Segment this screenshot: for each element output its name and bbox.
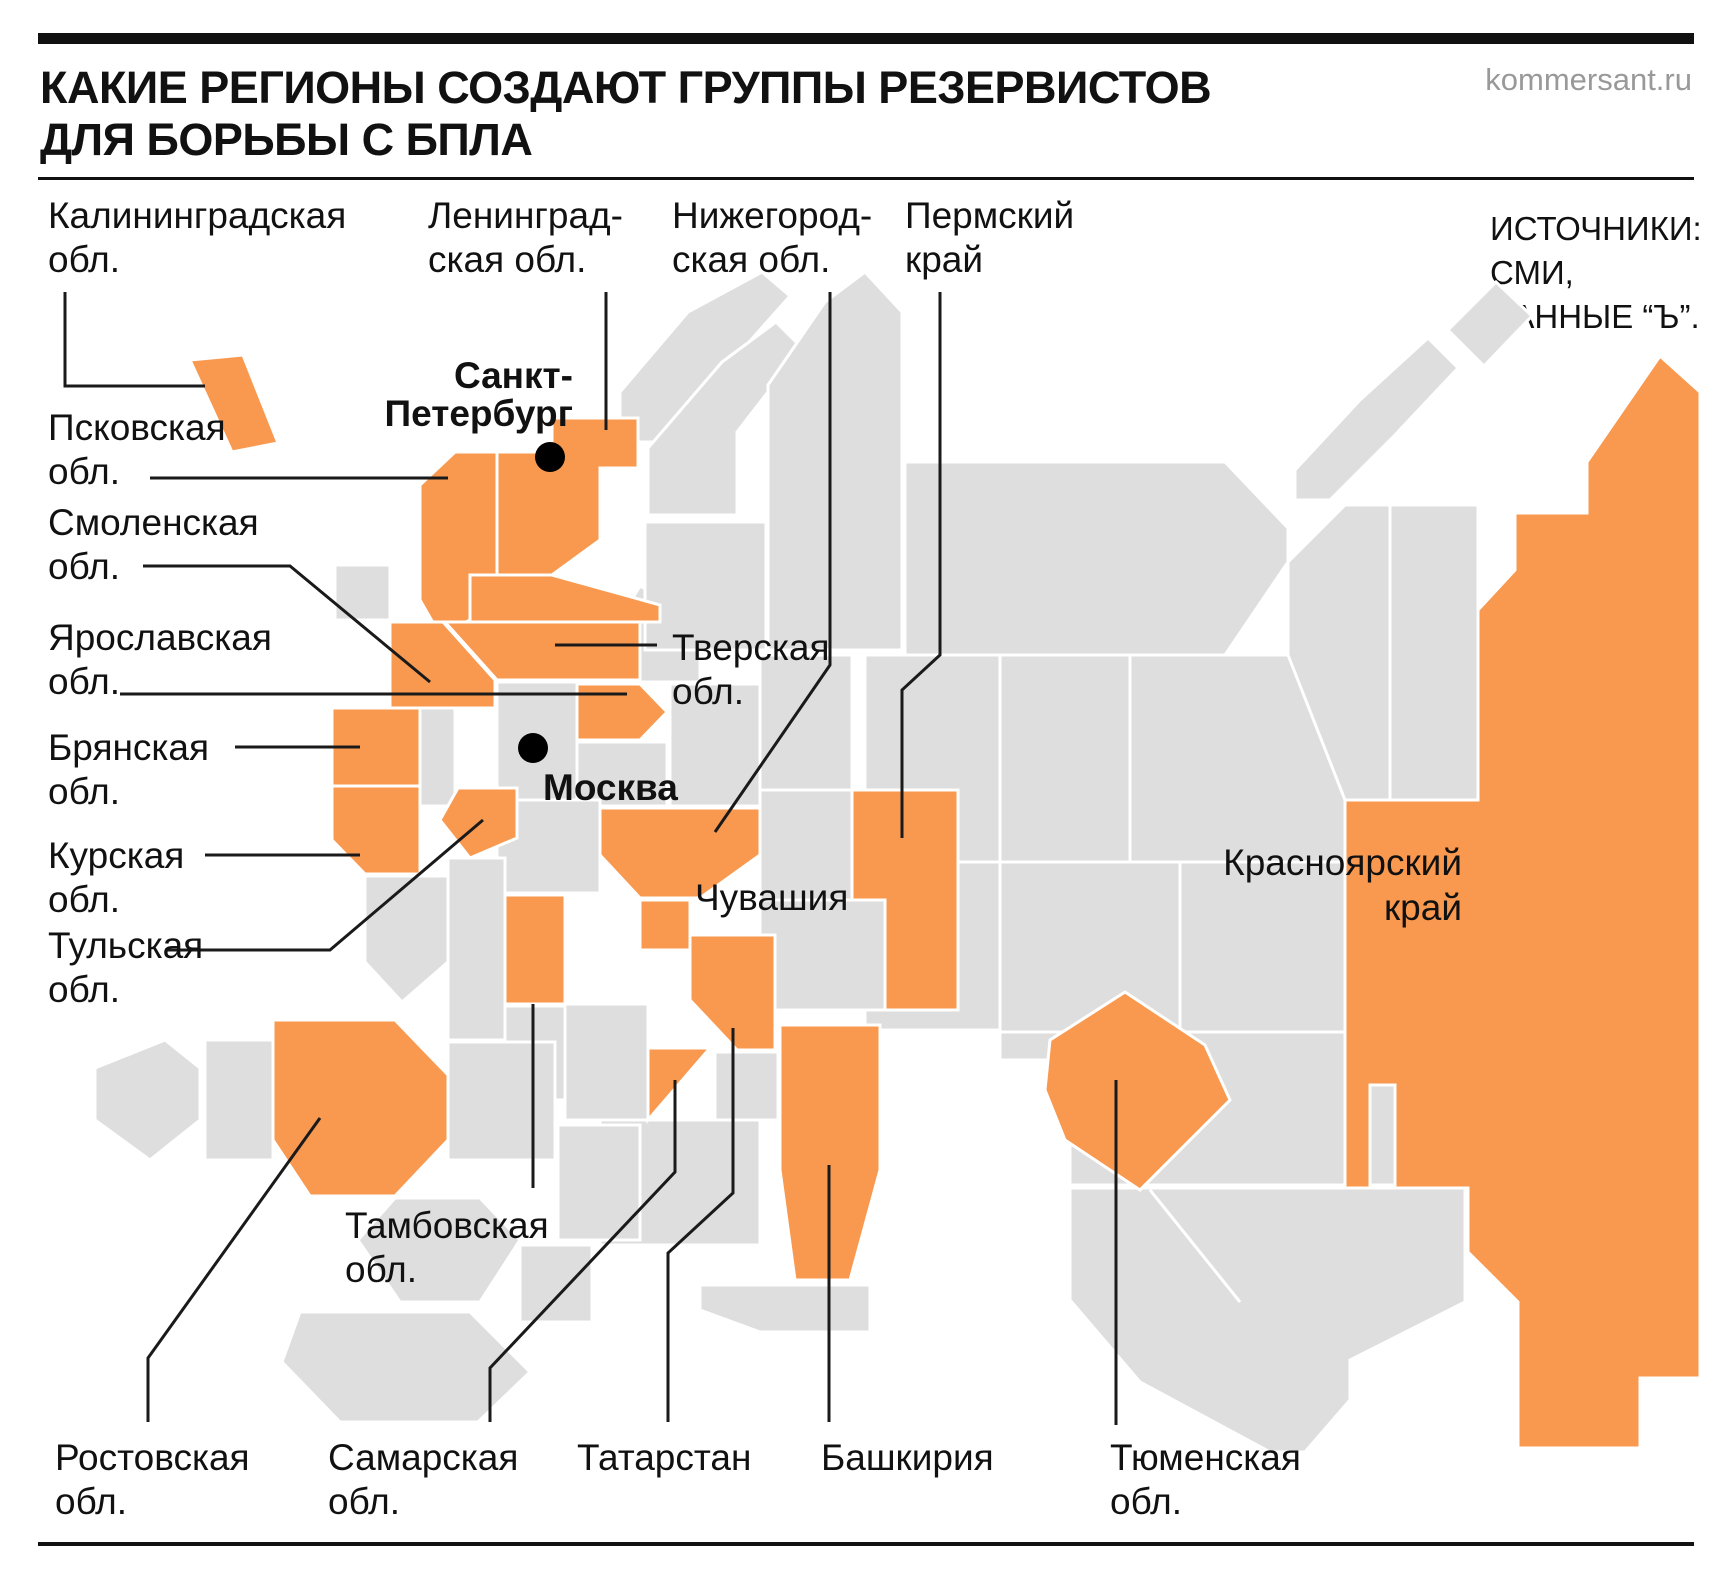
label-chuvashia: Чувашия [695,877,848,918]
label-bryansk-line2: обл. [48,771,120,812]
region-shape-yaroslavl-highlighted [577,684,667,740]
top-rule [38,33,1694,44]
label-tatarstan: Татарстан [577,1437,751,1478]
region-shape-belgorod [365,876,448,1002]
site-logo[interactable]: kommersant.ru [1485,62,1692,97]
region-shape-kursk-highlighted [332,786,420,874]
page-title-line2: ДЛЯ БОРЬБЫ С БПЛА [40,114,532,165]
label-nizhny-line1: Нижегород- [672,195,872,236]
label-rostov-line1: Ростовская [55,1437,250,1478]
label-smolensk-line1: Смоленская [48,502,259,543]
label-leningrad-line1: Ленинград- [428,195,623,236]
label-kaliningrad-line1: Калининградская [48,195,346,236]
label-tula-line2: обл. [48,969,120,1010]
label-pskov-line1: Псковская [48,407,226,448]
region-shape-orenburg [700,1285,870,1332]
region-shape-krasnoyarsk-notch [1370,1085,1395,1185]
region-shape-novgorod-highlighted [470,575,660,622]
label-moscow: Москва [543,767,678,808]
label-nizhny-line2: ская обл. [672,239,830,280]
region-shape-north-cape [1448,282,1532,366]
label-tambov-line2: обл. [345,1249,417,1290]
region-shape-samara-highlighted [648,1048,710,1120]
label-perm-line2: край [905,239,983,280]
region-shape-chuvashia-highlighted [640,900,690,950]
leader-kaliningrad [65,292,205,386]
label-samara-line2: обл. [328,1481,400,1522]
label-rostov-line2: обл. [55,1481,127,1522]
region-shape-komi [905,462,1288,655]
spb-city-dot [535,442,565,472]
label-bryansk-line1: Брянская [48,727,209,768]
region-shape-penza [565,1004,648,1120]
label-kaliningrad-line2: обл. [48,239,120,280]
label-kursk-line1: Курская [48,835,184,876]
page-title-line1: КАКИЕ РЕГИОНЫ СОЗДАЮТ ГРУППЫ РЕЗЕРВИСТОВ [40,62,1211,113]
label-tver-line1: Тверская [672,627,830,668]
label-krasnoyarsk-line1: Красноярский [1223,842,1462,883]
label-krasnoyarsk-line2: край [1384,887,1462,928]
sources-line1: ИСТОЧНИКИ: [1490,210,1702,247]
region-shape-rostov-highlighted [273,1020,448,1196]
region-shape-south-siberia [1070,1188,1465,1452]
label-spb-line1: Санкт- [454,355,573,396]
label-tyumen-line2: обл. [1110,1481,1182,1522]
label-perm-line1: Пермский [905,195,1074,236]
region-shape-kherson-side [205,1040,273,1160]
label-spb-line2: Петербург [385,393,573,434]
bottom-rule [38,1542,1694,1546]
region-shape-crimea [95,1040,200,1160]
region-shape-voronezh [448,858,505,1040]
moscow-city-dot [518,733,548,763]
region-shape-kirov [760,655,852,790]
label-tyumen-line1: Тюменская [1110,1437,1301,1478]
label-smolensk-line2: обл. [48,546,120,587]
drone-reservists-map: КАКИЕ РЕГИОНЫ СОЗДАЮТ ГРУППЫ РЕЗЕРВИСТОВ… [0,0,1732,1582]
label-tver-line2: обл. [672,671,744,712]
label-tula-line1: Тульская [48,925,203,966]
header-divider [38,177,1694,180]
sources-line2: СМИ, [1490,254,1574,291]
label-samara-line1: Самарская [328,1437,518,1478]
label-leningrad-line2: ская обл. [428,239,586,280]
label-pskov-line2: обл. [48,451,120,492]
label-tambov-line1: Тамбовская [345,1205,549,1246]
label-kursk-line2: обл. [48,879,120,920]
region-shape-volgograd [448,1042,555,1160]
region-shape-leningrad-highlighted [497,418,638,575]
label-yaroslavl-line2: обл. [48,661,120,702]
infographic-page: КАКИЕ РЕГИОНЫ СОЗДАЮТ ГРУППЫ РЕЗЕРВИСТОВ… [0,0,1732,1582]
region-shape-kaluga [420,708,455,806]
region-shape-kalmykia [520,1245,592,1322]
region-shape-taymyr [1295,338,1458,500]
region-shape-tambov-highlighted [505,895,565,1004]
label-bashkiria: Башкирия [821,1437,994,1478]
label-yaroslavl-line1: Ярославская [48,617,272,658]
region-shape-arkhangelsk [768,272,902,650]
region-shape-ulyanovsk [715,1052,778,1120]
